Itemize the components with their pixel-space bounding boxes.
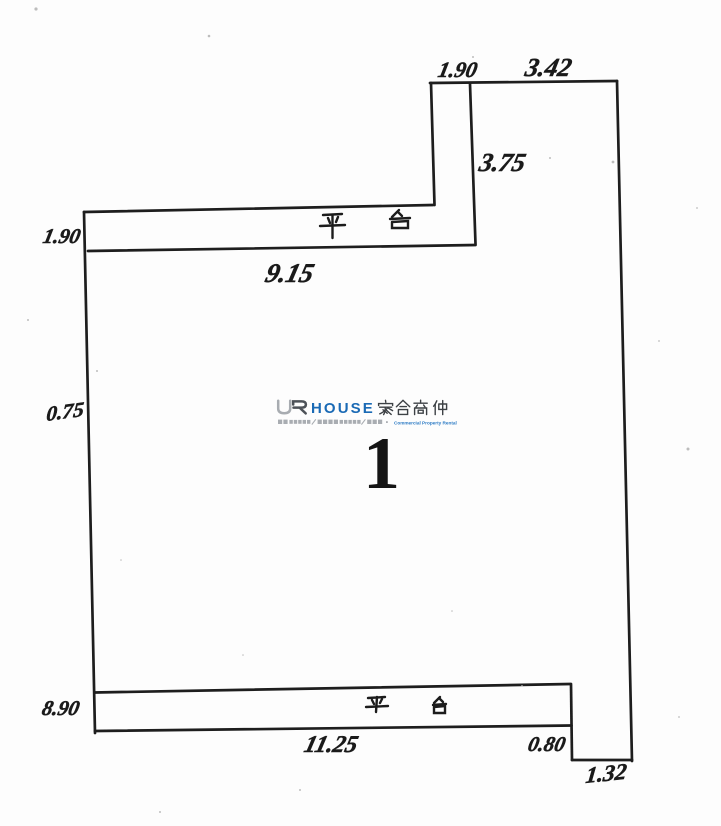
svg-text:HOUSE: HOUSE <box>311 400 375 417</box>
svg-text:0.80: 0.80 <box>526 732 568 756</box>
svg-text:Commercial Property Rental: Commercial Property Rental <box>394 420 457 425</box>
svg-text:1: 1 <box>363 423 400 505</box>
svg-text:3.75: 3.75 <box>476 148 529 177</box>
svg-text:8.90: 8.90 <box>40 696 82 720</box>
svg-text:1.90: 1.90 <box>436 57 480 82</box>
svg-text:1.32: 1.32 <box>584 759 628 789</box>
svg-text:9.15: 9.15 <box>263 258 318 288</box>
svg-text:11.25: 11.25 <box>302 731 361 758</box>
svg-text:1.90: 1.90 <box>41 224 83 248</box>
svg-text:3.42: 3.42 <box>522 53 575 82</box>
svg-text:0.75: 0.75 <box>46 397 86 426</box>
